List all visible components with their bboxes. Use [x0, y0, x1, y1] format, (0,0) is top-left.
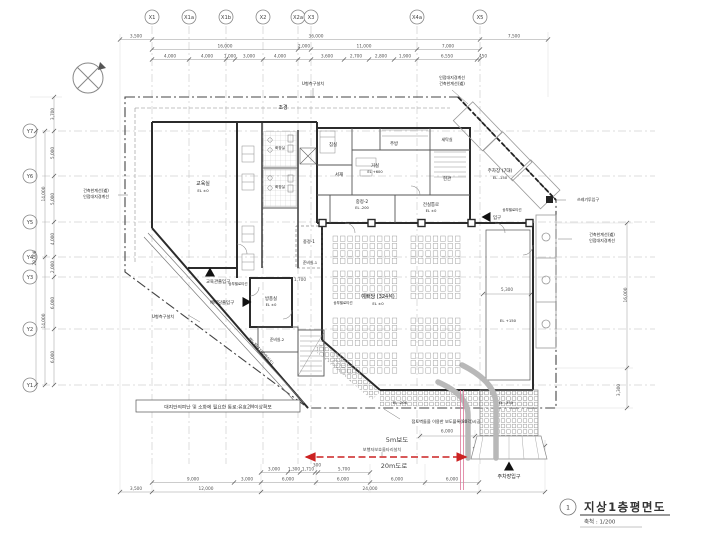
pew-seat	[377, 340, 382, 345]
pew-seat	[455, 286, 460, 291]
pew-seat	[385, 340, 390, 345]
pew-seat	[355, 271, 360, 276]
plan-label: EL -150	[493, 175, 508, 180]
pew-seat	[448, 368, 453, 373]
pew-seat	[363, 340, 368, 345]
pew-seat	[377, 286, 382, 291]
pew-seat	[433, 353, 438, 358]
grid-bubble-label: X2a	[293, 15, 303, 21]
pew-seat	[433, 236, 438, 241]
pew-seat	[441, 243, 446, 248]
pew-seat	[340, 340, 345, 345]
pew-seat	[455, 236, 460, 241]
pew-seat	[385, 286, 390, 291]
pew-seat	[418, 325, 423, 330]
pew-seat	[385, 318, 390, 323]
pew-seat	[433, 318, 438, 323]
dimension-text: 4,000	[164, 54, 177, 60]
plan-label: EL ±0	[372, 301, 384, 306]
plan-label: 쓰레기투입구	[577, 196, 599, 202]
plan-label: 서재	[335, 171, 343, 178]
dimension-text: 5,000	[50, 193, 56, 206]
grid-layer: X1X1aX1bX2X2aX3X4aX5Y7Y6Y5Y4Y3Y2Y1	[23, 10, 655, 464]
grid-bubble-label: Y7	[26, 129, 33, 135]
pew-seat	[363, 286, 368, 291]
pew-seat	[433, 251, 438, 256]
pew-seat	[448, 278, 453, 283]
pew-seat	[455, 278, 460, 283]
pew-seat	[377, 318, 382, 323]
floor-plan-canvas: X1X1aX1bX2X2aX3X4aX5Y7Y6Y5Y4Y3Y2Y1 3,500…	[0, 0, 718, 538]
pew-seat	[348, 251, 353, 256]
evacuation-note-text: 대지안의피난 및 소화에 필요한 통로:유효2M이상확보	[164, 404, 272, 411]
pew-seat	[392, 271, 397, 276]
pew-seat	[448, 286, 453, 291]
dimension-text: 3,300	[616, 384, 622, 397]
pew-seat	[355, 353, 360, 358]
pew-seat	[448, 258, 453, 263]
plan-label: EL -200	[355, 206, 369, 210]
pew-seat	[370, 236, 375, 241]
pew-seat	[377, 243, 382, 248]
dimension-text: 2,800	[375, 54, 388, 60]
pew-seat	[455, 243, 460, 248]
pew-seat	[433, 293, 438, 298]
pew-seat	[377, 258, 382, 263]
pew-seat	[441, 293, 446, 298]
pew-seat	[377, 271, 382, 276]
plan-label: 입구	[493, 214, 501, 221]
pew-seat	[377, 333, 382, 338]
pew-seat	[340, 333, 345, 338]
pew-seat	[448, 360, 453, 365]
pew-seat	[455, 353, 460, 358]
pew-seat	[392, 333, 397, 338]
dimension-text: 1,300	[288, 467, 301, 473]
pew-seat	[455, 325, 460, 330]
pew-seat	[426, 360, 431, 365]
title-block: 1 지상1층평면도 축척 : 1/200	[560, 499, 670, 527]
pew-seat	[370, 271, 375, 276]
pew-seat	[355, 286, 360, 291]
pew-seat	[333, 236, 338, 241]
pew-seat	[392, 368, 397, 373]
pew-seat	[370, 368, 375, 373]
pew-seat	[433, 258, 438, 263]
pew-seat	[426, 368, 431, 373]
pew-seat	[448, 271, 453, 276]
dimension-text: 12,000	[198, 486, 213, 492]
pew-seat	[363, 243, 368, 248]
floor-plan-svg: X1X1aX1bX2X2aX3X4aX5Y7Y6Y5Y4Y3Y2Y1 3,500…	[0, 0, 718, 538]
pew-seat	[340, 318, 345, 323]
pew-seat	[377, 251, 382, 256]
grid-bubble-label: X1a	[184, 15, 194, 21]
pew-seat	[433, 368, 438, 373]
pew-seat	[340, 258, 345, 263]
pew-seat	[418, 353, 423, 358]
pew-seat	[411, 325, 416, 330]
grid-bubble-label: Y5	[26, 220, 33, 226]
pew-seat	[441, 251, 446, 256]
plan-label: 침실	[329, 141, 337, 148]
pew-seat	[363, 258, 368, 263]
dimension-text: 5,700	[338, 467, 351, 473]
pew-seat	[411, 243, 416, 248]
pew-seat	[355, 318, 360, 323]
pew-seat	[392, 360, 397, 365]
dimension-text: 3,000	[268, 467, 281, 473]
dimension-text: 1,900	[399, 54, 412, 60]
pew-seat	[333, 243, 338, 248]
pew-seat	[411, 278, 416, 283]
plan-label: 현관	[443, 175, 451, 182]
grid-bubble-label: X1b	[221, 15, 232, 21]
pew-seat	[448, 353, 453, 358]
pew-seat	[441, 340, 446, 345]
plan-label: EL -350	[499, 400, 514, 405]
pew-seat	[418, 251, 423, 256]
pew-seat	[418, 318, 423, 323]
pew-seat	[348, 325, 353, 330]
evacuation-note: 대지안의피난 및 소화에 필요한 통로:유효2M이상확보	[136, 400, 300, 412]
pew-seat	[333, 325, 338, 330]
dimension-text: 6,000	[50, 297, 56, 310]
pew-seat	[340, 236, 345, 241]
pew-seat	[355, 360, 360, 365]
pew-seat	[411, 236, 416, 241]
pew-seat	[348, 278, 353, 283]
pew-seat	[411, 360, 416, 365]
plan-label: 교육관출입구	[206, 278, 230, 285]
plan-label: 중정-1	[303, 238, 315, 244]
pew-seat	[370, 251, 375, 256]
pew-seat	[392, 251, 397, 256]
pew-seat	[385, 258, 390, 263]
pew-seat	[370, 325, 375, 330]
pew-seat	[385, 278, 390, 283]
plan-label: 화장실	[275, 184, 285, 189]
pew-seat	[411, 258, 416, 263]
dimension-text: 24,000	[362, 486, 377, 492]
plan-label: 인접대지경계선	[589, 237, 615, 243]
dimension-text: 11,000	[356, 44, 371, 50]
pew-seat	[370, 353, 375, 358]
pew-seat	[411, 368, 416, 373]
pew-seat	[455, 333, 460, 338]
plan-label: EL ±0	[197, 188, 209, 193]
pew-seat	[448, 318, 453, 323]
pew-seat	[340, 293, 345, 298]
pew-seat	[448, 251, 453, 256]
pew-seat	[348, 258, 353, 263]
pew-seat	[418, 258, 423, 263]
elevator	[300, 148, 316, 164]
pew-seat	[385, 251, 390, 256]
pew-seat	[348, 333, 353, 338]
plan-label: U형측구설치	[302, 80, 324, 87]
grid-bubble-label: X5	[477, 15, 484, 21]
pew-seat	[392, 318, 397, 323]
pew-seat	[370, 243, 375, 248]
pew-seat	[377, 278, 382, 283]
drawing-title: 지상1층평면도	[584, 500, 666, 514]
plan-label: 주차장입구	[497, 473, 520, 480]
pew-seat	[418, 278, 423, 283]
pew-seat	[418, 360, 423, 365]
dimension-text: 4,000	[201, 54, 214, 60]
pew-seat	[363, 360, 368, 365]
pew-seat	[433, 271, 438, 276]
grid-bubble-label: Y3	[26, 275, 33, 281]
pew-seat	[441, 278, 446, 283]
pew-seat	[426, 278, 431, 283]
pew-seat	[363, 368, 368, 373]
dimension-text: 7,500	[508, 34, 521, 40]
pew-seat	[370, 318, 375, 323]
dimension-text: 3,500	[130, 34, 143, 40]
plan-label: EL -200	[393, 400, 408, 405]
pew-seat	[392, 325, 397, 330]
plan-label: 건축한계선(道)	[439, 80, 465, 86]
pew-seat	[363, 353, 368, 358]
dimension-text: 1,000	[224, 54, 237, 60]
dimension-text: 6,000	[391, 477, 404, 483]
pew-seat	[370, 340, 375, 345]
pew-seat	[392, 258, 397, 263]
plan-label: 예배당 (324석)	[361, 293, 394, 300]
grid-bubble-label: X1	[149, 15, 156, 21]
pew-seat	[441, 353, 446, 358]
pew-seat	[333, 293, 338, 298]
pew-seat	[448, 243, 453, 248]
pew-seat	[433, 243, 438, 248]
pew-seat	[340, 286, 345, 291]
pew-seat	[363, 236, 368, 241]
dimension-text: 6,000	[337, 477, 350, 483]
pew-seat	[441, 258, 446, 263]
pew-seat	[355, 243, 360, 248]
pew-seat	[385, 353, 390, 358]
grid-bubble-label: X2	[260, 15, 267, 21]
dimension-text: 2,000	[50, 261, 56, 274]
pew-seat	[392, 286, 397, 291]
pew-seat	[448, 333, 453, 338]
pew-seat	[392, 236, 397, 241]
pew-seat	[455, 258, 460, 263]
pew-seat	[441, 333, 446, 338]
plan-label: 건축한계선(道)	[83, 187, 109, 193]
pew-seat	[426, 243, 431, 248]
pew-seat	[433, 340, 438, 345]
north-arrow-icon	[73, 62, 106, 93]
pew-seat	[377, 368, 382, 373]
pew-seat	[385, 333, 390, 338]
pew-seat	[455, 271, 460, 276]
pew-seat	[418, 340, 423, 345]
pew-seat	[426, 340, 431, 345]
pew-seat	[377, 325, 382, 330]
dimension-text: 3,600	[321, 54, 334, 60]
pew-seat	[411, 340, 416, 345]
pew-seat	[333, 318, 338, 323]
pew-seat	[340, 243, 345, 248]
pew-seat	[455, 318, 460, 323]
plan-label: 인접대지경계선	[83, 193, 109, 199]
plan-label: 상부필로티선	[228, 281, 247, 286]
dimension-text: 4,000	[274, 54, 287, 60]
pew-seat	[411, 318, 416, 323]
plan-label: 상부필로티선	[502, 207, 521, 212]
pew-seat	[411, 293, 416, 298]
dimension-text: 3,000	[241, 477, 254, 483]
pew-seat	[441, 286, 446, 291]
pew-seat	[355, 251, 360, 256]
dimension-lines: 3,50036,0007,50016,0002,00011,0007,0004,…	[30, 32, 633, 494]
grid-bubble-label: X4a	[412, 15, 422, 21]
pew-seat	[377, 353, 382, 358]
plan-label: EL +150	[500, 318, 517, 323]
building-partitions	[258, 128, 530, 380]
pew-seat	[377, 360, 382, 365]
pew-seat	[333, 251, 338, 256]
pew-seat	[363, 325, 368, 330]
fence-label: 보행자보호울타리설치	[363, 446, 402, 453]
pew-seat	[385, 271, 390, 276]
pew-seat	[418, 368, 423, 373]
pew-seat	[411, 271, 416, 276]
pew-seat	[333, 286, 338, 291]
pew-seat	[441, 318, 446, 323]
pew-seat	[348, 286, 353, 291]
sidewalk-label: 5m보도	[386, 436, 408, 444]
pew-seat	[340, 251, 345, 256]
pew-seat	[448, 325, 453, 330]
pew-seat	[385, 368, 390, 373]
pew-seat	[392, 278, 397, 283]
pew-seat	[385, 325, 390, 330]
dimension-text: 6,550	[441, 54, 454, 60]
road-label: 20m도로	[381, 462, 408, 470]
dimension-text: 16,000	[217, 44, 232, 50]
pew-seat	[333, 278, 338, 283]
pew-seat	[411, 333, 416, 338]
pew-seat	[370, 258, 375, 263]
dimension-text: 6,000	[446, 477, 459, 483]
grid-bubble-label: Y1	[26, 383, 33, 389]
drawing-scale: 축척 : 1/200	[584, 518, 616, 526]
grid-bubble-label: Y2	[26, 327, 33, 333]
pew-seat	[348, 353, 353, 358]
pew-seat	[441, 271, 446, 276]
entrance-arrow-left	[482, 212, 491, 222]
dimension-text: 14,000	[41, 186, 47, 201]
dimension-text: 450	[479, 54, 487, 60]
dimension-text: 6,000	[441, 429, 454, 435]
plan-label: 건축한계선(道)	[589, 231, 615, 237]
pew-seat	[363, 318, 368, 323]
plan-label: EL +600	[367, 170, 383, 174]
pew-seat	[370, 360, 375, 365]
pew-seat	[433, 286, 438, 291]
pew-seat	[348, 318, 353, 323]
plan-label: U형측구설치	[152, 313, 174, 320]
pew-seat	[455, 368, 460, 373]
pew-seat	[448, 236, 453, 241]
pew-seat	[455, 340, 460, 345]
pew-seat	[348, 340, 353, 345]
pew-seat	[340, 325, 345, 330]
dimension-text: 14,000	[41, 313, 47, 328]
dimension-text: 36,000	[308, 34, 323, 40]
pew-seat	[426, 236, 431, 241]
plan-label: 주차장 (7대)	[488, 167, 513, 174]
plan-label: 준비실-1	[303, 260, 318, 265]
dimension-text: 6,000	[282, 477, 295, 483]
pew-seat	[418, 293, 423, 298]
pew-seat	[411, 286, 416, 291]
pew-seat	[418, 271, 423, 276]
pew-seat	[363, 251, 368, 256]
pew-seat	[348, 243, 353, 248]
pew-seat	[348, 293, 353, 298]
dimension-text: 4,000	[50, 233, 56, 246]
pew-seat	[448, 293, 453, 298]
pew-seat	[333, 258, 338, 263]
plan-label: EL ±0	[266, 303, 277, 307]
pew-seat	[411, 353, 416, 358]
dimension-text: 1,700	[294, 277, 307, 283]
pew-seat	[355, 278, 360, 283]
pew-seat	[333, 333, 338, 338]
pew-seat	[433, 360, 438, 365]
plan-label: 상부필로티선	[333, 300, 352, 305]
pew-seat	[426, 271, 431, 276]
pew-seat	[426, 325, 431, 330]
plan-label: 점토벽돌을 이용한 보도블록(80각)시공	[411, 418, 480, 425]
pew-seat	[441, 368, 446, 373]
plan-label: 거실	[371, 162, 379, 169]
pew-seat	[385, 243, 390, 248]
pew-seat	[426, 318, 431, 323]
plan-label: 조경	[278, 104, 287, 111]
pew-seat	[355, 236, 360, 241]
pew-seat	[370, 278, 375, 283]
pew-seat	[448, 340, 453, 345]
plan-label: 예배당출입구	[210, 299, 234, 306]
pew-seat	[363, 278, 368, 283]
pew-seat	[418, 286, 423, 291]
pew-seat	[433, 325, 438, 330]
pew-seat	[355, 325, 360, 330]
pew-seat	[348, 271, 353, 276]
pew-seat	[340, 278, 345, 283]
dimension-text: 3,500	[130, 486, 143, 492]
pew-seat	[433, 333, 438, 338]
dimension-text: 7,000	[442, 44, 455, 50]
plan-label: 세탁실	[441, 136, 452, 142]
dimension-text: 3,000	[243, 54, 256, 60]
pew-seat	[418, 333, 423, 338]
plan-label: 교육실	[196, 180, 210, 187]
pew-seat	[433, 278, 438, 283]
pew-seat	[441, 325, 446, 330]
entrance-arrow-up	[504, 462, 514, 471]
drawing-number: 1	[566, 505, 570, 512]
dimension-text: 6,000	[50, 351, 56, 364]
pew-seat	[355, 333, 360, 338]
plan-label: 방풍실	[265, 295, 277, 302]
